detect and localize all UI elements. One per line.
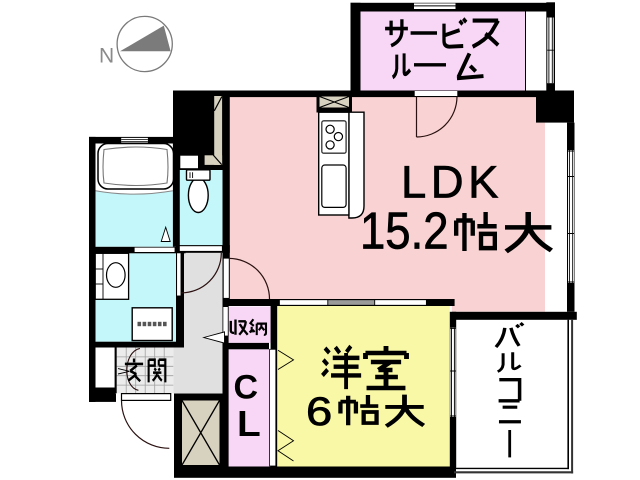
svg-text:L: L <box>237 404 261 444</box>
svg-text:LDK: LDK <box>401 157 503 208</box>
svg-text:15.2: 15.2 <box>360 203 449 260</box>
svg-text:6: 6 <box>306 389 332 434</box>
svg-text:N: N <box>99 45 114 68</box>
svg-text:C: C <box>234 368 259 406</box>
